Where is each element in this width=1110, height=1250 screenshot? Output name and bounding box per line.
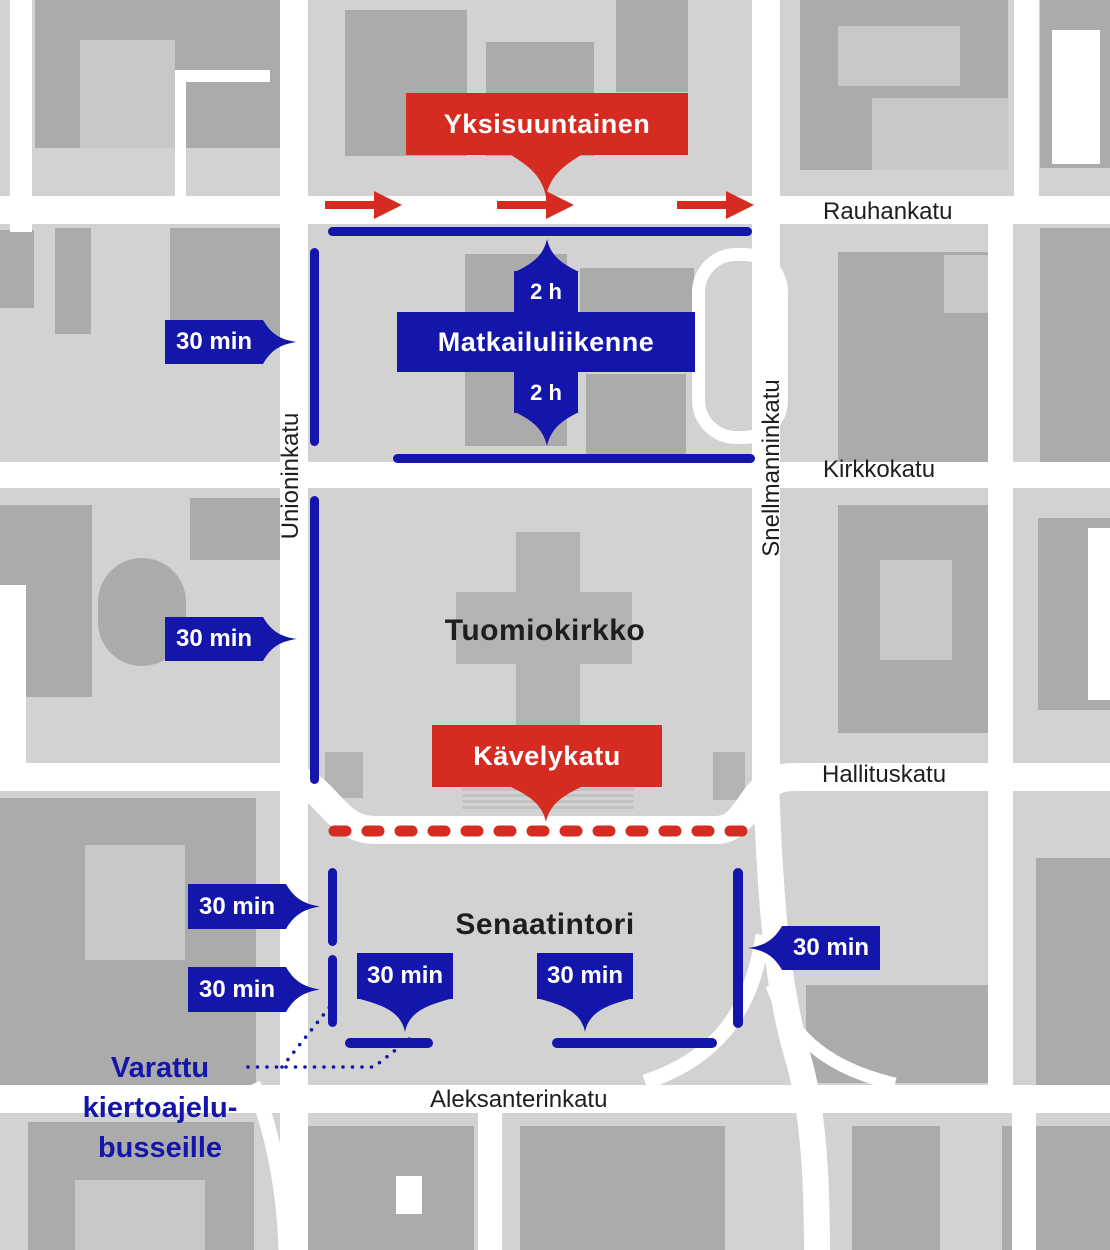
badge-pointer-right [263,320,297,364]
parking-segment [345,1038,433,1048]
building [713,752,745,800]
building [520,1126,725,1250]
street [0,585,26,765]
building [1040,228,1110,462]
note-line: Varattu [55,1048,265,1088]
building [0,230,34,308]
parking-badge-square-west-lower: 30 min [188,967,320,1012]
building-courtyard [838,26,960,86]
building-courtyard [75,1180,205,1250]
parking-segment [310,248,319,446]
parking-badge-unioninkatu-lower: 30 min [165,617,297,661]
parking-segment [393,454,755,463]
building [852,1126,940,1250]
badge-label: 30 min [165,320,263,364]
parking-badge-unioninkatu-upper: 30 min [165,320,297,364]
building-courtyard [85,845,185,960]
badge-label: 30 min [357,953,453,999]
street-alley [175,70,270,82]
street-label-aleksanterinkatu: Aleksanterinkatu [430,1086,607,1114]
building-courtyard [80,40,175,148]
street [478,1113,502,1250]
street-kirkkokatu [0,462,1110,488]
parking-badge-square-south-right: 30 min [537,953,633,999]
parking-badge-square-east: 30 min [748,926,880,970]
city-map: Rauhankatu Kirkkokatu Hallituskatu Aleks… [0,0,1110,1250]
tourist-traffic-tab-top: 2 h [514,271,578,312]
badge-label: 30 min [782,926,880,970]
tab-pointer-up [515,239,579,272]
parking-segment [552,1038,717,1048]
badge-pointer-right [286,967,320,1012]
street-label-hallituskatu: Hallituskatu [822,761,946,789]
badge-label: 30 min [188,884,286,929]
building [306,1126,474,1250]
street-alley [175,70,186,198]
tourist-traffic-tab-bottom: 2 h [514,372,578,413]
badge-pointer-left [748,926,782,970]
badge-label: 30 min [537,953,633,999]
reserved-buses-note: Varattu kiertoajelu- busseille [55,1048,265,1168]
place-label-cathedral: Tuomiokirkko [445,614,645,648]
badge-pointer-right [263,617,297,661]
building [1036,858,1110,1085]
one-way-banner: Yksisuuntainen [406,93,688,155]
building [325,752,363,798]
street-label-unioninkatu: Unioninkatu [277,413,305,540]
parking-segment [310,496,319,784]
street [1014,0,1039,196]
parking-segment [328,227,752,236]
banner-pointer [511,787,581,822]
street-label-snellmanninkatu: Snellmanninkatu [758,379,786,556]
parking-segment [328,868,337,946]
building [55,228,91,334]
parking-badge-square-west-upper: 30 min [188,884,320,929]
note-line: kiertoajelu- [55,1088,265,1128]
tourist-traffic-banner: Matkailuliikenne [397,312,695,372]
street [988,196,1013,1113]
building-courtyard [872,98,1008,170]
badge-pointer-down [540,999,630,1032]
parking-badge-square-south-left: 30 min [357,953,453,999]
badge-pointer-right [286,884,320,929]
pedestrian-street-banner: Kävelykatu [432,725,662,787]
building [190,498,282,560]
banner-pointer [511,155,581,197]
building [616,0,688,92]
courtyard [1052,30,1100,164]
courtyard [396,1176,422,1214]
badge-label: 30 min [165,617,263,661]
street-label-rauhankatu: Rauhankatu [823,198,952,226]
badge-pointer-down [360,999,450,1032]
street-label-kirkkokatu: Kirkkokatu [823,456,935,484]
courtyard [1088,528,1110,700]
parking-segment [733,868,743,1028]
place-label-square: Senaatintori [455,908,634,942]
note-line: busseille [55,1128,265,1168]
parking-segment [328,955,337,1027]
building [806,985,1012,1083]
building-courtyard [880,560,952,660]
tab-pointer-down [515,412,579,446]
badge-label: 30 min [188,967,286,1012]
